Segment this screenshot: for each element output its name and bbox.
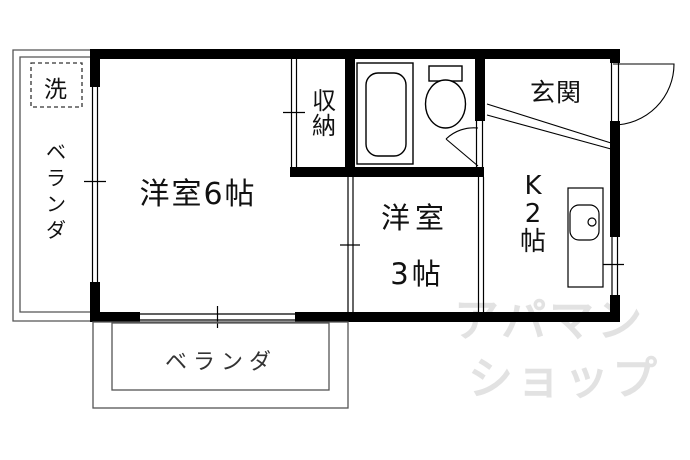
wall-left-upper [90, 49, 100, 87]
kitchen-partition [479, 177, 484, 312]
kitchen-label: K2帖 [519, 172, 547, 256]
wall-right-top [610, 49, 620, 63]
toilet-icon [426, 66, 466, 128]
bathroom-door-swing-icon [446, 128, 478, 166]
veranda-left-label: ベランダ [45, 139, 67, 243]
wall-closet-bath-divider [345, 59, 355, 167]
wall-right-bottom [610, 295, 620, 322]
room3-label-line2: 3帖 [355, 251, 479, 293]
genkan-step-line [487, 104, 611, 149]
wall-top [90, 49, 620, 59]
closet-door [283, 59, 305, 167]
room3-label-line1: 洋室 [355, 195, 475, 237]
closet-label: 収納 [311, 89, 337, 139]
faucet-hole-icon [588, 218, 596, 226]
room6-label: 洋室6帖 [110, 169, 286, 213]
washer-label: 洗 [44, 70, 67, 104]
wall-right-middle [610, 121, 620, 237]
window-left-icon [84, 87, 106, 282]
wall-bath-right [475, 59, 485, 121]
entrance-label: 玄関 [516, 73, 596, 109]
kitchen-counter [568, 188, 603, 287]
entrance-door-jambs [612, 63, 619, 121]
veranda-bottom-label: ベランダ [130, 344, 312, 376]
floorplan-drawing [0, 0, 690, 460]
bathtub-icon [357, 63, 413, 164]
floorplan-canvas: アパマン ショップ [0, 0, 690, 460]
entrance-door-swing-icon [613, 64, 674, 125]
wall-bottom-left [90, 312, 140, 322]
wall-service-bottom [290, 167, 484, 177]
window-east-icon [602, 237, 624, 295]
wall-bottom-right [295, 312, 620, 322]
window-south-icon [140, 306, 295, 328]
